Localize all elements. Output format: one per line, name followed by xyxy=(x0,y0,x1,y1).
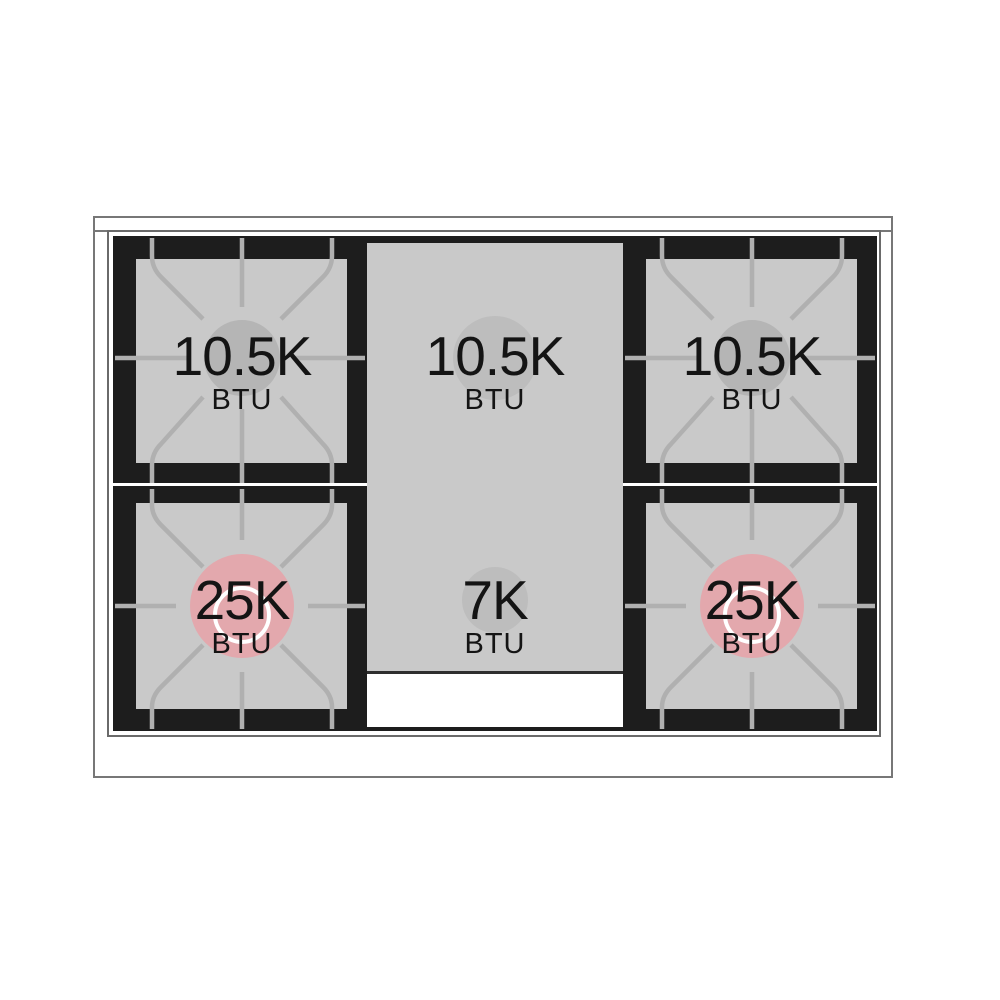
burner-btu-value: 25K xyxy=(132,572,352,628)
burner-rating-bottom-left: 25K BTU xyxy=(132,572,352,660)
burner-btu-value: 10.5K xyxy=(385,328,605,384)
burner-btu-value: 10.5K xyxy=(132,328,352,384)
griddle-front-gap xyxy=(367,674,623,727)
cooktop-frame xyxy=(107,230,881,737)
range-body xyxy=(93,216,893,778)
burner-rating-top-left: 10.5K BTU xyxy=(132,328,352,416)
burner-btu-unit: BTU xyxy=(642,385,862,416)
burner-btu-unit: BTU xyxy=(385,385,605,416)
burner-btu-value: 7K xyxy=(385,572,605,628)
burner-rating-top-right: 10.5K BTU xyxy=(642,328,862,416)
burner-rating-bottom-right: 25K BTU xyxy=(642,572,862,660)
burner-btu-unit: BTU xyxy=(385,629,605,660)
burner-btu-value: 25K xyxy=(642,572,862,628)
burner-btu-unit: BTU xyxy=(132,385,352,416)
burner-btu-unit: BTU xyxy=(642,629,862,660)
cooktop-diagram: 10.5K BTU 10.5K BTU 10.5K BTU 25K BTU 7K… xyxy=(0,0,1000,1000)
burner-btu-value: 10.5K xyxy=(642,328,862,384)
burner-btu-unit: BTU xyxy=(132,629,352,660)
burner-rating-top-center: 10.5K BTU xyxy=(385,328,605,416)
burner-rating-bottom-center: 7K BTU xyxy=(385,572,605,660)
